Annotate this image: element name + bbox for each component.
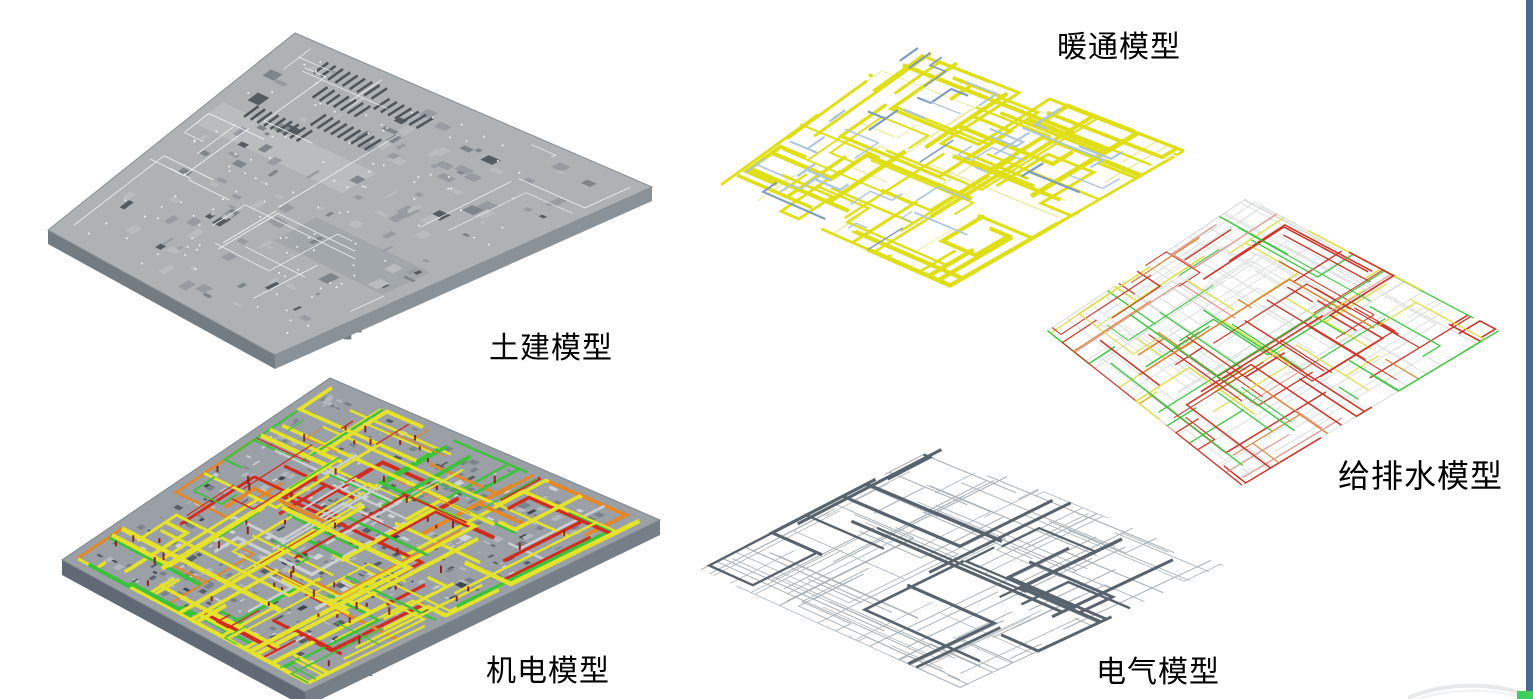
- civil-model-label: 土建模型: [489, 332, 613, 367]
- slide-right-border: [1526, 0, 1533, 692]
- mep-model-label: 机电模型: [486, 655, 610, 690]
- corner-swoosh-graphic: [1408, 677, 1528, 699]
- mep-model-render: [55, 365, 685, 699]
- plumbing-model-label: 给排水模型: [1338, 458, 1503, 495]
- slide-corner-accent: [1517, 691, 1533, 699]
- mep-model-panel: [55, 365, 685, 699]
- bim-models-figure: 土建模型 暖通模型 给排水模型 机电模型 电气模型: [0, 0, 1533, 699]
- hvac-model-label: 暖通模型: [1057, 31, 1181, 66]
- electrical-model-label: 电气模型: [1096, 656, 1220, 691]
